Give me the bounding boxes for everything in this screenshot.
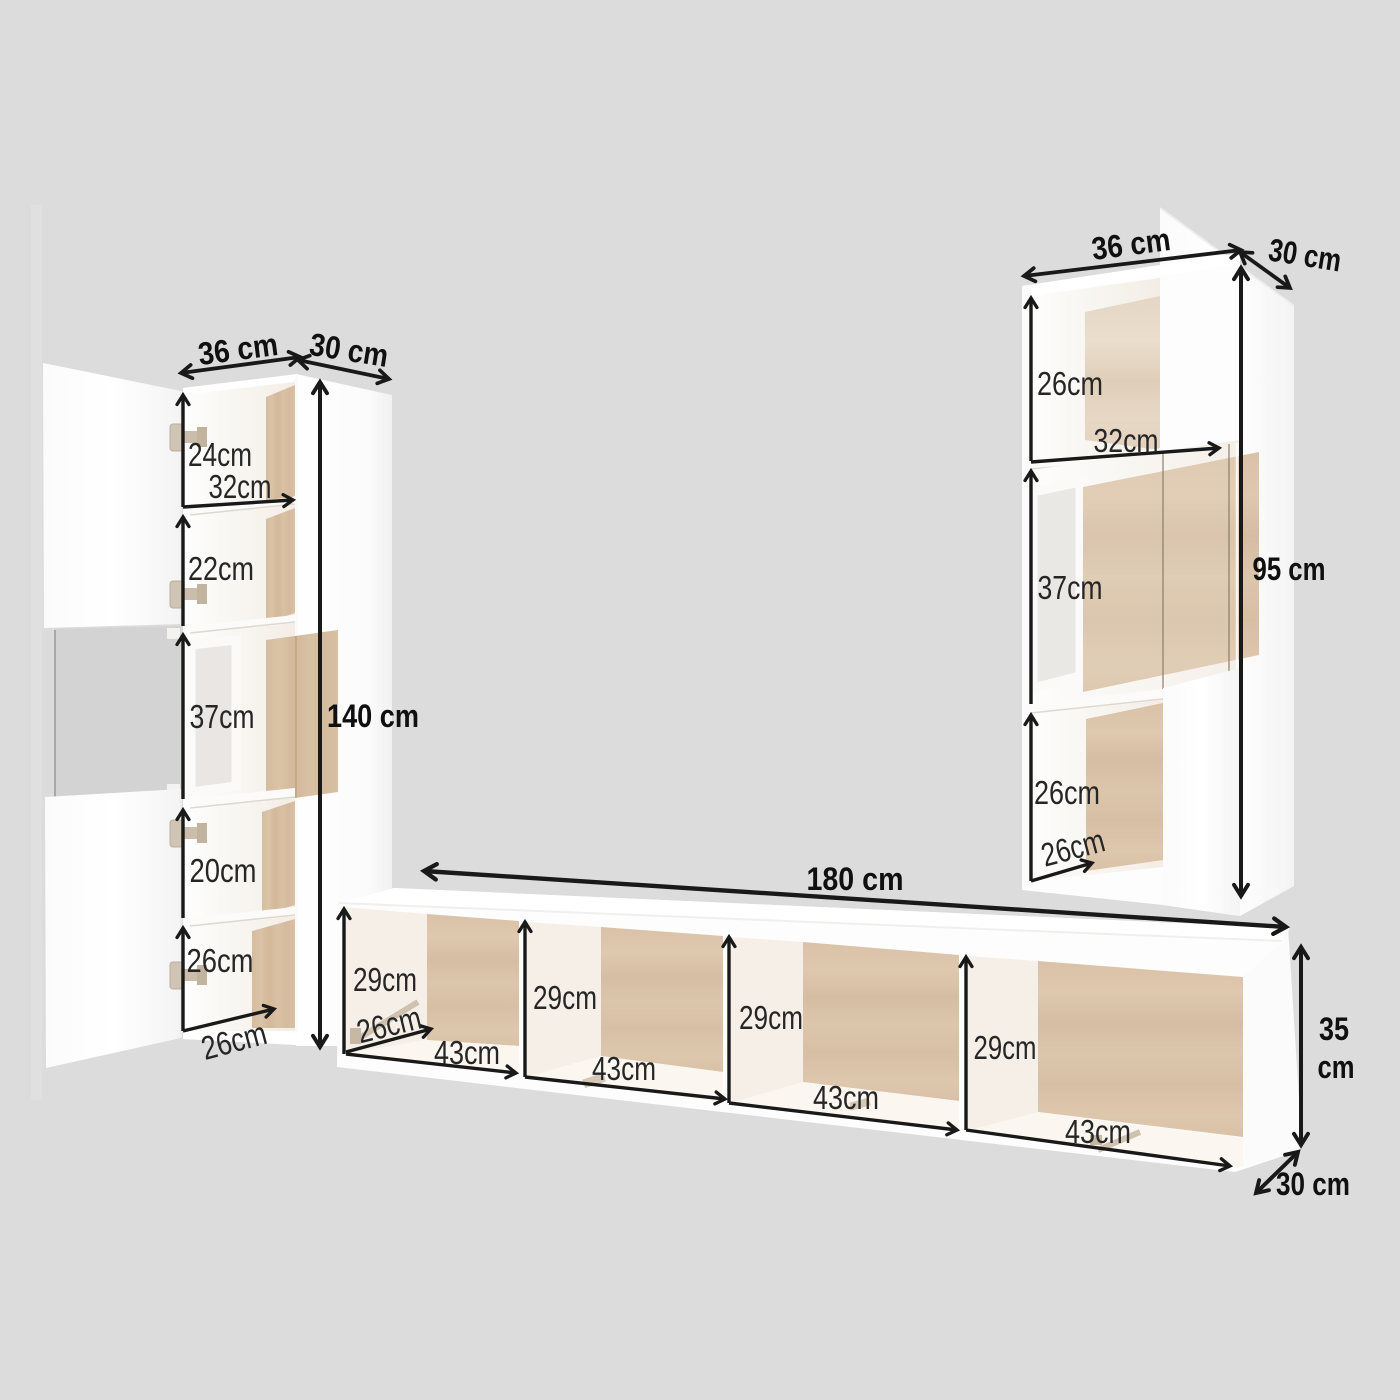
svg-text:35: 35 — [1319, 1011, 1349, 1047]
svg-text:43cm: 43cm — [1065, 1113, 1131, 1150]
svg-text:180 cm: 180 cm — [807, 861, 904, 897]
svg-text:26cm: 26cm — [1034, 774, 1100, 811]
svg-text:26cm: 26cm — [1037, 365, 1103, 402]
svg-text:43cm: 43cm — [813, 1079, 879, 1116]
svg-text:22cm: 22cm — [188, 550, 254, 587]
svg-text:30 cm: 30 cm — [1276, 1166, 1350, 1202]
svg-text:140 cm: 140 cm — [327, 698, 419, 734]
svg-text:43cm: 43cm — [434, 1034, 500, 1071]
svg-text:37cm: 37cm — [190, 698, 255, 735]
svg-text:29cm: 29cm — [533, 979, 597, 1016]
svg-text:29cm: 29cm — [739, 999, 803, 1036]
svg-text:26cm: 26cm — [187, 942, 254, 979]
svg-text:29cm: 29cm — [353, 961, 417, 998]
svg-text:20cm: 20cm — [190, 852, 257, 889]
svg-text:32cm: 32cm — [1094, 422, 1159, 459]
svg-text:29cm: 29cm — [974, 1029, 1037, 1066]
svg-text:32cm: 32cm — [209, 468, 272, 505]
svg-text:43cm: 43cm — [592, 1050, 656, 1087]
svg-text:95 cm: 95 cm — [1253, 551, 1326, 587]
svg-text:37cm: 37cm — [1038, 569, 1103, 606]
svg-text:cm: cm — [1318, 1049, 1355, 1085]
